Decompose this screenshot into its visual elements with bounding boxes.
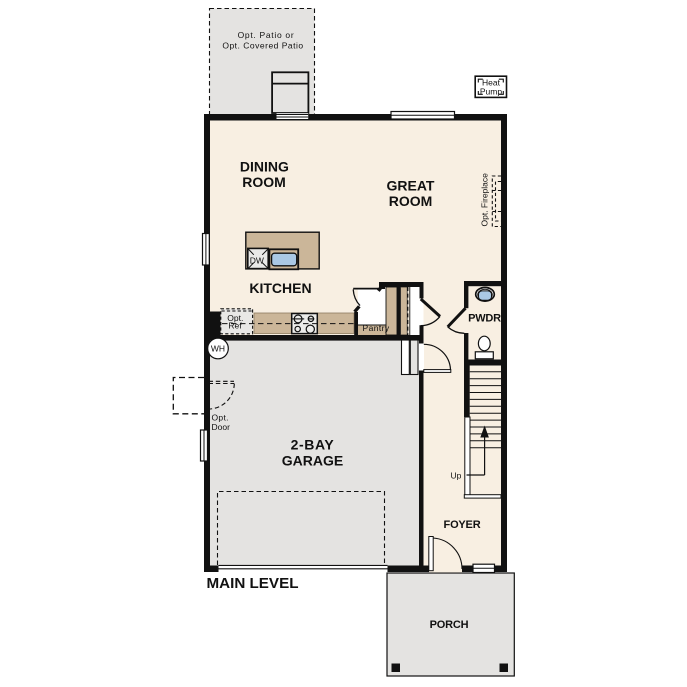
svg-text:Opt. Fireplace: Opt. Fireplace (480, 173, 490, 227)
svg-text:Opt. Patio or: Opt. Patio or (238, 30, 295, 40)
svg-text:Door: Door (212, 422, 231, 432)
svg-text:PWDR: PWDR (468, 313, 501, 325)
svg-text:Opt.: Opt. (212, 413, 229, 423)
svg-text:Opt. Covered Patio: Opt. Covered Patio (222, 41, 303, 51)
svg-text:GREAT: GREAT (387, 177, 435, 193)
svg-text:ROOM: ROOM (242, 174, 286, 190)
svg-text:FOYER: FOYER (444, 519, 481, 531)
svg-text:Pump: Pump (480, 87, 502, 97)
svg-text:Pantry: Pantry (363, 323, 390, 333)
svg-text:PORCH: PORCH (430, 619, 469, 631)
svg-text:DW: DW (250, 255, 264, 265)
svg-text:GARAGE: GARAGE (282, 453, 343, 469)
svg-text:2-BAY: 2-BAY (291, 437, 335, 453)
svg-text:ROOM: ROOM (389, 193, 433, 209)
svg-text:Up: Up (451, 471, 462, 481)
svg-text:MAIN LEVEL: MAIN LEVEL (207, 575, 299, 592)
svg-text:DINING: DINING (240, 159, 289, 175)
svg-text:KITCHEN: KITCHEN (249, 280, 311, 296)
svg-text:Ref: Ref (228, 321, 242, 331)
svg-text:WH: WH (211, 344, 225, 354)
